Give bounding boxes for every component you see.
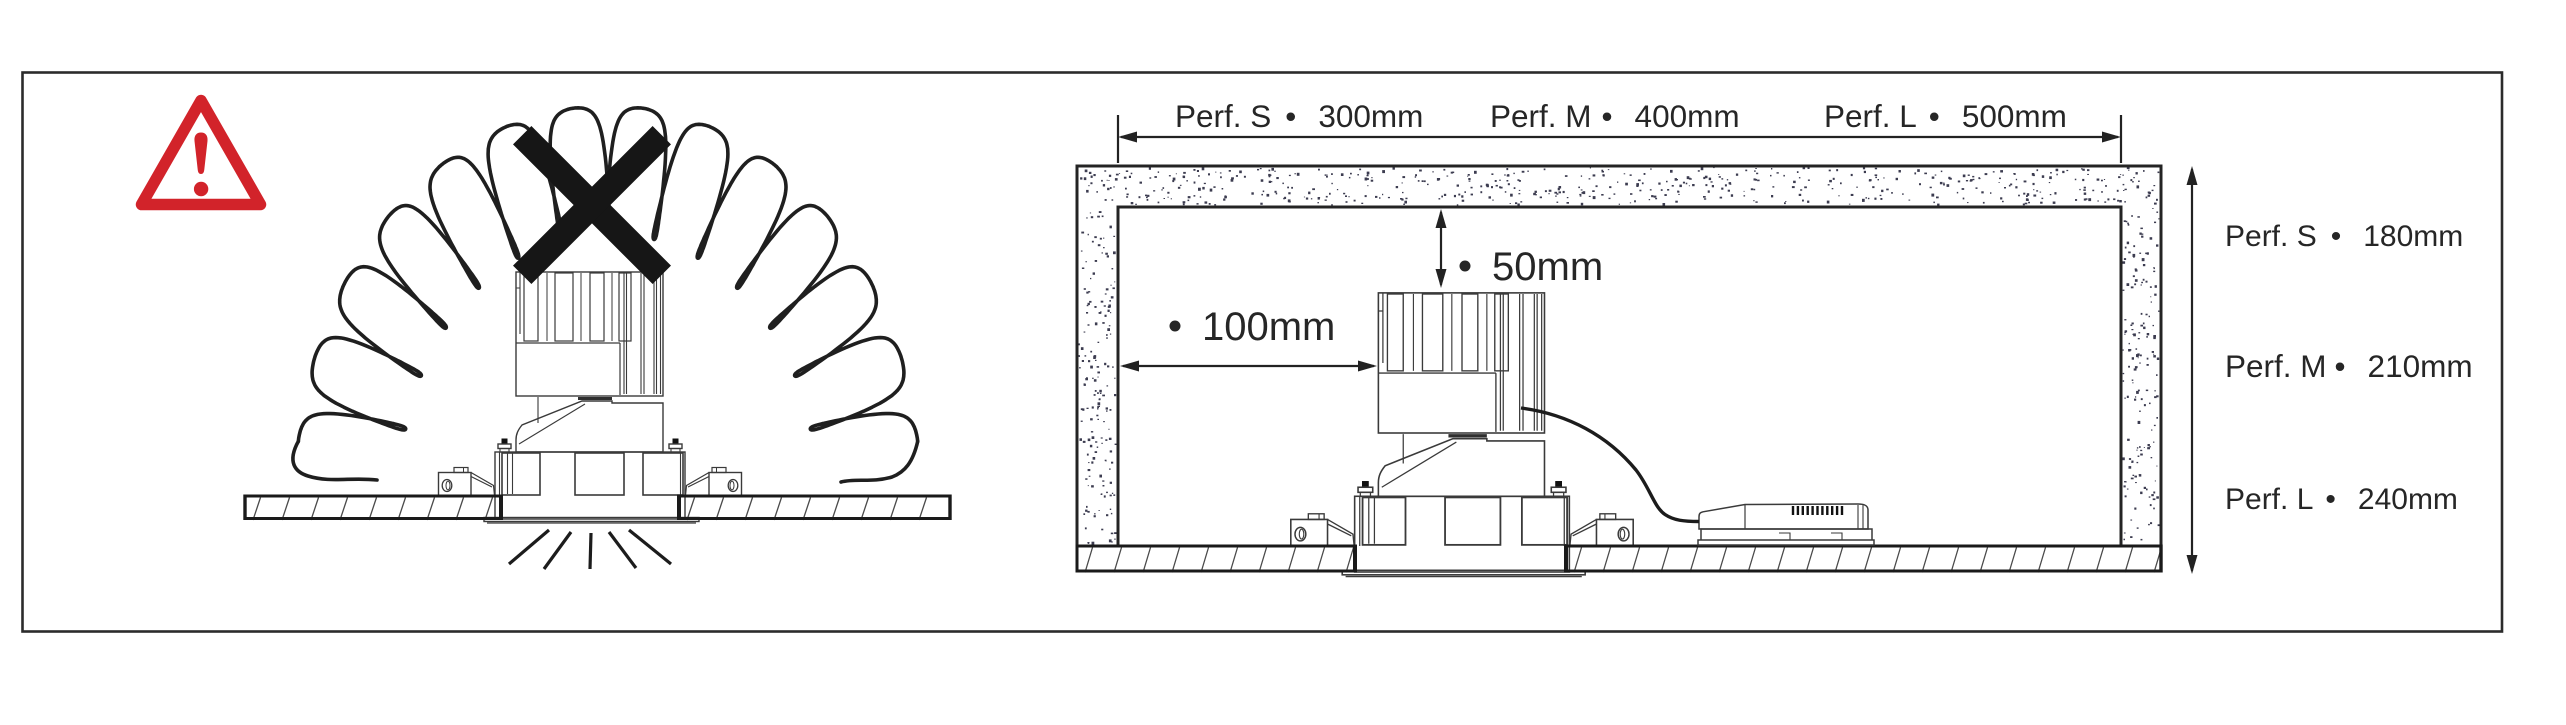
svg-text:Perf. L•240mm: Perf. L•240mm: [2225, 483, 2458, 516]
svg-text:Perf. S•180mm: Perf. S•180mm: [2225, 220, 2463, 253]
svg-text:Perf. L•500mm: Perf. L•500mm: [1824, 98, 2067, 134]
svg-text:Perf. M•210mm: Perf. M•210mm: [2225, 348, 2473, 384]
svg-text:100mm: 100mm: [1202, 305, 1335, 349]
svg-text:50mm: 50mm: [1492, 245, 1603, 289]
svg-text:Perf. S•300mm: Perf. S•300mm: [1175, 98, 1423, 134]
svg-text:Perf. M•400mm: Perf. M•400mm: [1490, 98, 1740, 134]
